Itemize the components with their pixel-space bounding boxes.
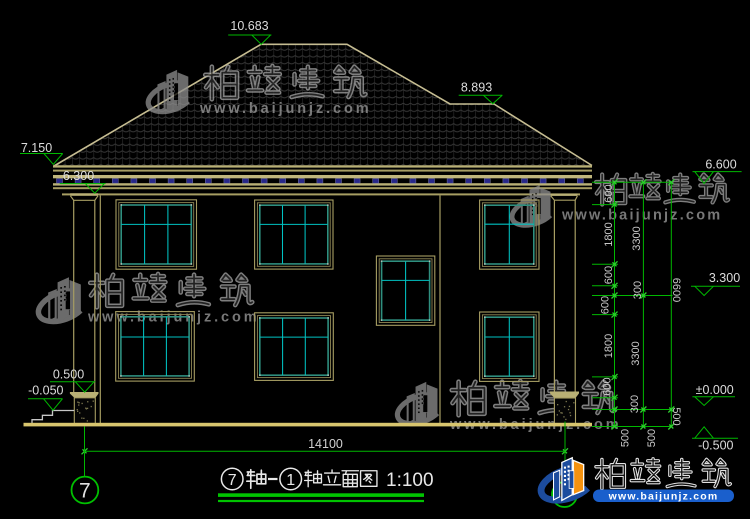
- svg-text:6600: 6600: [670, 278, 682, 302]
- svg-text:500: 500: [670, 407, 682, 425]
- svg-text:1800: 1800: [603, 222, 615, 246]
- svg-text:600: 600: [603, 266, 615, 284]
- svg-text:14100: 14100: [308, 437, 343, 451]
- svg-text:3.300: 3.300: [709, 271, 740, 285]
- svg-text:±0.000: ±0.000: [696, 383, 734, 397]
- svg-text:500: 500: [646, 429, 658, 447]
- svg-text:www.baijunjz.com: www.baijunjz.com: [561, 208, 722, 224]
- svg-text:300: 300: [632, 281, 644, 299]
- svg-text:3300: 3300: [630, 341, 642, 365]
- svg-text:500: 500: [620, 429, 632, 447]
- svg-text:600: 600: [600, 296, 612, 314]
- svg-text:0.500: 0.500: [53, 367, 84, 381]
- svg-text:1: 1: [286, 472, 295, 489]
- svg-text:-0.500: -0.500: [698, 439, 733, 453]
- svg-text:7: 7: [228, 472, 237, 489]
- svg-text:www.baijunjz.com: www.baijunjz.com: [199, 101, 372, 117]
- svg-text:6.600: 6.600: [705, 158, 736, 172]
- svg-text:600: 600: [603, 184, 615, 202]
- svg-text:10.683: 10.683: [230, 19, 268, 33]
- svg-text:7: 7: [79, 480, 91, 503]
- svg-text:6.300: 6.300: [63, 169, 94, 183]
- svg-text:-0.050: -0.050: [28, 384, 63, 398]
- svg-text:1:100: 1:100: [386, 470, 434, 491]
- svg-text:8.893: 8.893: [461, 80, 492, 94]
- svg-text:300: 300: [629, 395, 641, 413]
- svg-text:600: 600: [602, 377, 614, 395]
- svg-text:www.baijunjz.com: www.baijunjz.com: [608, 491, 719, 503]
- svg-text:1800: 1800: [603, 334, 615, 358]
- svg-text:7.150: 7.150: [21, 141, 52, 155]
- svg-text:3300: 3300: [631, 226, 643, 250]
